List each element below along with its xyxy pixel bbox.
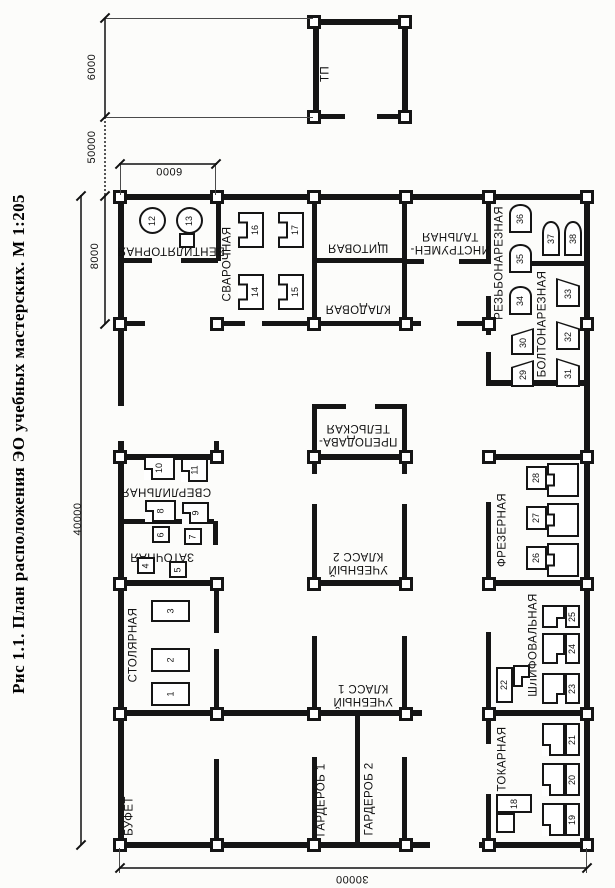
machine-number: 25 — [567, 611, 577, 621]
machine-number: 32 — [563, 332, 573, 342]
machine-8: 8 — [145, 500, 176, 522]
column — [398, 110, 412, 124]
wall — [312, 321, 407, 326]
column — [210, 317, 224, 331]
machine-number: 8 — [155, 508, 165, 513]
wall — [402, 463, 407, 474]
machine-number: 1 — [165, 691, 175, 696]
machine-number: 14 — [250, 287, 260, 297]
column — [482, 838, 496, 852]
machine-number: 24 — [567, 643, 577, 653]
column — [307, 190, 321, 204]
column — [307, 450, 321, 464]
column — [482, 190, 496, 204]
machine-number: 26 — [531, 553, 541, 563]
machine-17: 17 — [278, 212, 304, 248]
room-label-prepodavatelskaya: ПРЕПОДАВА-ТЕЛЬСКАЯ — [319, 421, 398, 447]
wall — [121, 258, 152, 263]
machine-number: 36 — [515, 213, 525, 223]
column — [399, 190, 413, 204]
column — [113, 317, 127, 331]
machine-19-body — [542, 803, 565, 836]
wall — [486, 454, 590, 460]
wall — [402, 504, 407, 582]
machine-number: 19 — [567, 814, 577, 824]
wall — [312, 636, 317, 712]
machine-12: 12 — [139, 207, 166, 234]
wall — [319, 114, 345, 119]
room-label-stolyarnaya: СТОЛЯРНАЯ — [127, 608, 140, 683]
machine-5: 5 — [169, 561, 187, 578]
wall — [118, 842, 430, 848]
room-label-tp: ТП — [319, 66, 332, 82]
wall — [312, 580, 407, 586]
machine-29: 29 — [511, 360, 534, 387]
wall — [312, 454, 407, 460]
wall — [313, 19, 319, 120]
column — [307, 838, 321, 852]
wall — [355, 714, 360, 845]
wall — [402, 19, 408, 120]
machine-23: 23 — [565, 673, 580, 704]
wall — [584, 194, 590, 848]
wall — [214, 587, 219, 633]
column — [399, 707, 413, 721]
wall — [314, 258, 406, 263]
machine-25-body — [542, 605, 565, 628]
machine-21: 21 — [565, 723, 580, 756]
machine-number: 11 — [190, 465, 200, 474]
machine-3: 3 — [151, 600, 190, 622]
machine-28-body — [547, 463, 579, 497]
machine-37: 37 — [542, 221, 560, 256]
machine-34: 34 — [509, 286, 532, 315]
machine-number: 33 — [563, 289, 573, 299]
room-label-klass2: УЧЕБНЫЙКЛАСС 2 — [328, 549, 388, 575]
machine-38: 38 — [564, 221, 582, 256]
column — [580, 190, 594, 204]
room-label-bufet: БУФЕТ — [123, 796, 136, 836]
room-label-tokarnaya: ТОКАРНАЯ — [496, 727, 509, 792]
column — [307, 317, 321, 331]
room-label-garderob1: ГАРДЕРОБ 1 — [315, 764, 328, 837]
machine-1: 1 — [151, 682, 190, 706]
machine-16: 16 — [238, 212, 264, 248]
machine-number: 23 — [567, 683, 577, 693]
wall — [530, 261, 588, 266]
room-label-line: КЛАСС 1 — [338, 682, 389, 694]
wall — [312, 404, 346, 409]
machine-number: 3 — [165, 608, 175, 613]
dimension-line-dotted — [104, 117, 106, 195]
machine-7: 7 — [184, 528, 202, 545]
wall — [486, 632, 491, 711]
machine-number: 20 — [567, 774, 577, 784]
machine-number: 9 — [190, 510, 200, 515]
room-label-klass1: УЧЕБНЫЙКЛАСС 1 — [333, 681, 393, 707]
column — [307, 707, 321, 721]
wall — [181, 258, 218, 263]
extension-line — [120, 164, 121, 195]
machine-26: 26 — [526, 546, 547, 570]
wall — [118, 441, 124, 848]
room-label-line: ТАЛЬНАЯ — [422, 230, 479, 242]
machine-number: 16 — [250, 225, 260, 235]
machine-25: 25 — [565, 605, 580, 628]
dim-bay-width: 6000 — [156, 165, 182, 177]
column — [399, 450, 413, 464]
machine-31: 31 — [556, 358, 580, 387]
machine-number: 12 — [147, 215, 157, 225]
machine-36: 36 — [509, 204, 532, 233]
machine-18-body — [496, 813, 515, 833]
machine-14: 14 — [238, 274, 264, 310]
machine-18: 18 — [496, 794, 532, 813]
machine-number: 7 — [188, 534, 198, 539]
room-label-line: УЧЕБНЫЙ — [328, 563, 388, 575]
wall — [118, 194, 590, 200]
machine-number: 30 — [518, 338, 528, 348]
machine-13: 13 — [176, 207, 203, 234]
machine-number: 17 — [290, 225, 300, 235]
machine-number: 4 — [141, 563, 151, 568]
room-label-line: ПРЕПОДАВА- — [319, 435, 398, 447]
machine-9: 9 — [182, 502, 209, 524]
figure-caption: Рис 1.1. План расположения ЭО учебных ма… — [9, 194, 29, 694]
machine-26-body — [547, 543, 579, 577]
wall — [214, 649, 219, 713]
machine-4: 4 — [137, 557, 155, 574]
room-label-line: ИНСТРУМЕН- — [410, 243, 490, 255]
machine-21-body — [542, 723, 565, 756]
machine-number: 35 — [515, 253, 525, 263]
wall — [214, 759, 219, 839]
wall — [407, 259, 424, 264]
dimension-line — [104, 18, 106, 117]
machine-number: 34 — [515, 295, 525, 305]
machine-22-body — [513, 665, 530, 687]
machine-28: 28 — [526, 466, 547, 490]
room-label-ventilatornaya: ВЕНТИЛЯТОРНАЯ — [117, 243, 224, 256]
column — [399, 838, 413, 852]
room-label-garderob2: ГАРДЕРОБ 2 — [363, 763, 376, 836]
wall — [486, 580, 590, 586]
machine-27-body — [547, 503, 579, 537]
column — [210, 838, 224, 852]
column — [580, 577, 594, 591]
machine-24-body — [542, 633, 565, 664]
wall — [312, 504, 317, 582]
machine-number: 13 — [184, 215, 194, 225]
column — [482, 707, 496, 721]
room-label-line: УЧЕБНЫЙ — [333, 695, 393, 707]
machine-2: 2 — [151, 648, 190, 672]
extension-line — [105, 117, 313, 118]
column — [399, 577, 413, 591]
machine-30: 30 — [511, 328, 534, 355]
column — [398, 15, 412, 29]
room-label-frezernaya: ФРЕЗЕРНАЯ — [496, 493, 509, 567]
machine-number: 22 — [499, 680, 509, 690]
wall — [402, 757, 407, 845]
column — [482, 450, 496, 464]
column — [113, 577, 127, 591]
machine-number: 37 — [546, 233, 556, 243]
machine-number: 5 — [173, 567, 183, 572]
machine-number: 18 — [509, 798, 519, 808]
machine-27: 27 — [526, 506, 547, 530]
column — [210, 450, 224, 464]
room-label-rezbonareznaya: РЕЗЬБОНАРЕЗНАЯ — [493, 206, 506, 320]
dim-wing-depth: 8000 — [89, 243, 101, 269]
dim-tp-width: 6000 — [86, 54, 98, 80]
wall — [486, 502, 491, 582]
extension-line — [105, 18, 313, 19]
wall — [213, 521, 218, 545]
scanned-figure-page: Рис 1.1. План расположения ЭО учебных ма… — [0, 0, 615, 888]
machine-number: 15 — [290, 287, 300, 297]
dim-building-length: 40000 — [72, 502, 84, 535]
machine-13-duct — [179, 233, 195, 248]
wall — [402, 636, 407, 712]
room-label-kladovaya: КЛАДОВАЯ — [325, 301, 391, 314]
dimension-line — [104, 195, 106, 324]
machine-number: 38 — [568, 233, 578, 243]
column — [113, 707, 127, 721]
extension-line — [215, 164, 216, 195]
machine-number: 10 — [154, 463, 164, 473]
machine-19: 19 — [565, 803, 580, 836]
room-label-instrumentalnaya: ИНСТРУМЕН-ТАЛЬНАЯ — [410, 229, 490, 255]
column — [210, 190, 224, 204]
room-label-sverlilnaya: СВЕРЛИЛЬНАЯ — [121, 484, 211, 497]
column — [307, 577, 321, 591]
column — [482, 577, 496, 591]
machine-number: 2 — [165, 657, 175, 662]
dim-building-width: 30000 — [335, 873, 368, 885]
column — [580, 838, 594, 852]
machine-10: 10 — [144, 456, 175, 480]
dim-tp-to-building: 50000 — [86, 130, 98, 163]
dimension-line — [119, 867, 587, 869]
machine-number: 27 — [531, 513, 541, 523]
machine-number: 28 — [531, 473, 541, 483]
room-label-line: КЛАСС 2 — [333, 550, 384, 562]
column — [210, 577, 224, 591]
machine-number: 31 — [563, 369, 573, 379]
machine-20: 20 — [565, 763, 580, 796]
wall — [118, 580, 218, 586]
machine-32: 32 — [556, 321, 580, 350]
wall — [486, 352, 491, 383]
machine-20-body — [542, 763, 565, 796]
wall — [118, 194, 124, 406]
machine-33: 33 — [556, 278, 580, 307]
column — [210, 707, 224, 721]
column — [580, 450, 594, 464]
machine-24: 24 — [565, 633, 580, 664]
machine-22: 22 — [496, 667, 513, 703]
machine-number: 6 — [156, 532, 166, 537]
room-label-boltonareznaya: БОЛТОНАРЕЗНАЯ — [536, 271, 549, 378]
column — [580, 707, 594, 721]
wall — [118, 710, 422, 716]
machine-number: 29 — [518, 370, 528, 380]
wall — [482, 710, 590, 716]
machine-11: 11 — [181, 458, 208, 482]
column — [580, 317, 594, 331]
column — [113, 838, 127, 852]
room-label-svarochnaya: СВАРОЧНАЯ — [221, 227, 234, 302]
room-label-shchitovaya: ЩИТОВАЯ — [328, 240, 389, 253]
column — [113, 450, 127, 464]
machine-23-body — [542, 673, 565, 704]
wall — [312, 463, 317, 474]
machine-number: 21 — [567, 734, 577, 744]
room-label-line: ТЕЛЬСКАЯ — [326, 422, 390, 434]
wall — [313, 19, 409, 25]
machine-6: 6 — [152, 526, 170, 543]
wall — [222, 321, 245, 326]
machine-15: 15 — [278, 274, 304, 310]
machine-35: 35 — [509, 244, 532, 273]
column — [399, 317, 413, 331]
